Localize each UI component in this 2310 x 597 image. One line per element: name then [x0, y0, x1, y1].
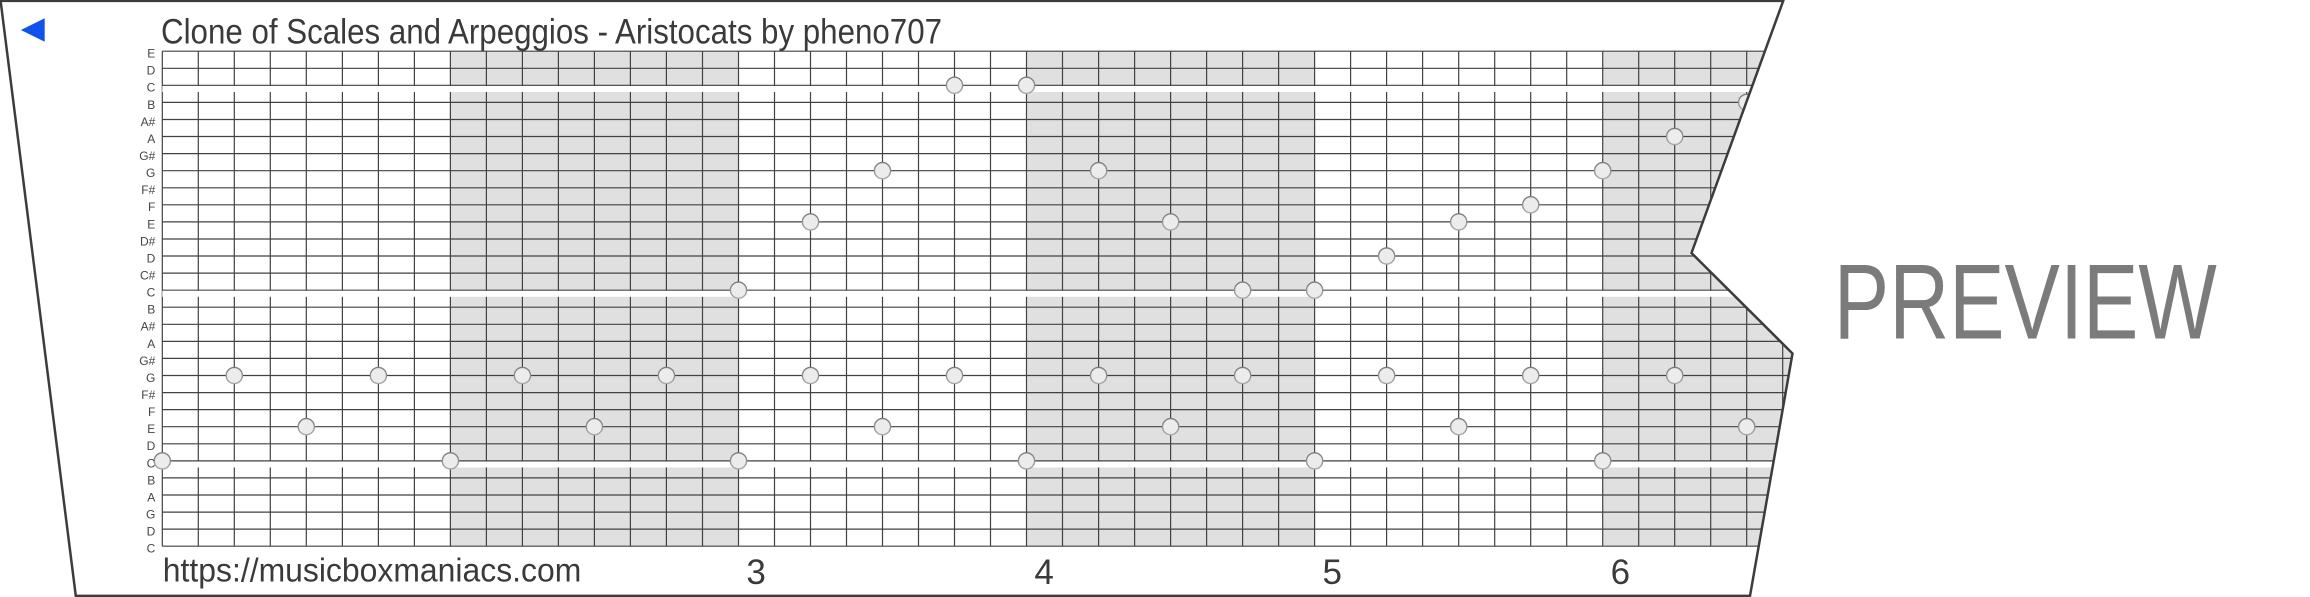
svg-text:B: B [147, 303, 155, 317]
svg-text:G: G [146, 166, 155, 180]
svg-text:F#: F# [141, 388, 155, 402]
svg-text:Clone of Scales and Arpeggios: Clone of Scales and Arpeggios - Aristoca… [161, 13, 942, 52]
svg-text:G#: G# [139, 149, 155, 163]
svg-text:C: C [147, 286, 156, 300]
svg-text:G#: G# [139, 354, 155, 368]
svg-text:D#: D# [140, 234, 156, 248]
svg-text:F: F [148, 200, 155, 214]
svg-text:5: 5 [1323, 553, 1342, 592]
svg-text:G: G [146, 371, 155, 385]
svg-text:B: B [147, 473, 155, 487]
svg-text:D: D [147, 64, 156, 78]
svg-text:A: A [147, 132, 155, 146]
svg-text:B: B [147, 98, 155, 112]
svg-text:4: 4 [1034, 553, 1053, 592]
svg-text:A: A [147, 490, 155, 504]
svg-text:F#: F# [141, 183, 155, 197]
svg-text:3: 3 [746, 553, 765, 592]
svg-text:https://musicboxmaniacs.com: https://musicboxmaniacs.com [163, 552, 582, 589]
svg-text:A: A [147, 337, 155, 351]
svg-text:A#: A# [141, 115, 156, 129]
svg-text:PREVIEW: PREVIEW [1834, 243, 2217, 362]
svg-text:C: C [147, 542, 156, 556]
svg-text:E: E [147, 47, 155, 61]
svg-text:C: C [147, 456, 156, 470]
svg-text:G: G [146, 508, 155, 522]
svg-text:6: 6 [1611, 553, 1630, 592]
svg-text:D: D [147, 251, 156, 265]
svg-text:D: D [147, 439, 156, 453]
svg-text:E: E [147, 422, 155, 436]
svg-text:D: D [147, 525, 156, 539]
svg-text:C#: C# [140, 269, 156, 283]
svg-text:C: C [147, 81, 156, 95]
svg-text:E: E [147, 217, 155, 231]
svg-text:A#: A# [141, 320, 156, 334]
svg-text:F: F [148, 405, 155, 419]
